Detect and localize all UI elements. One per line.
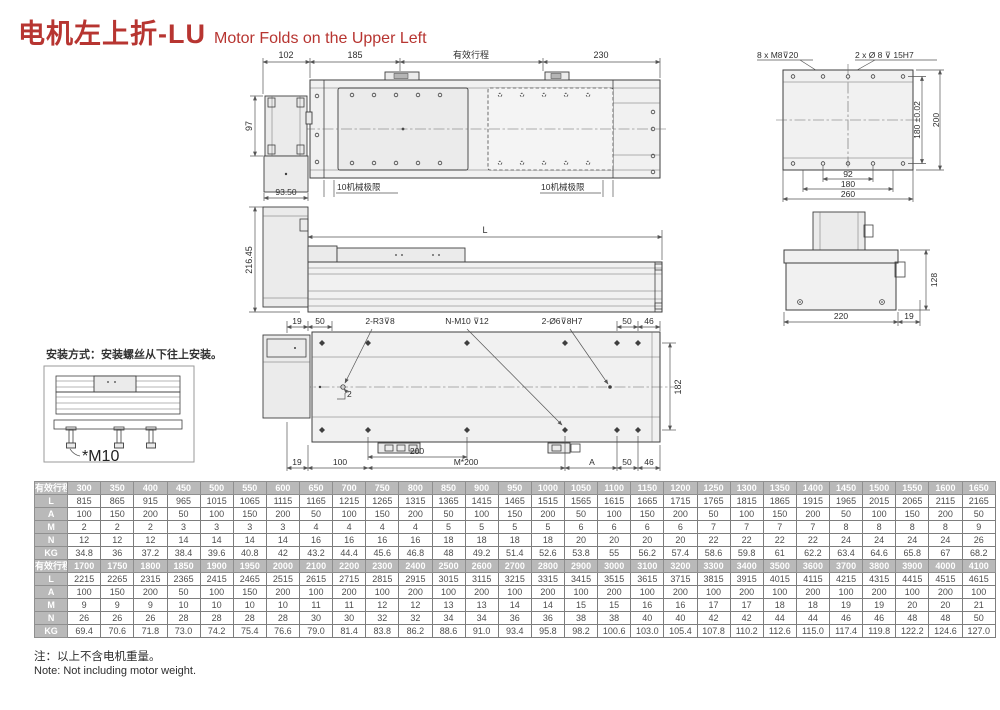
value-cell: 127.0 bbox=[962, 625, 996, 638]
value-cell: 26 bbox=[101, 612, 134, 625]
value-cell: 2 bbox=[68, 521, 101, 534]
value-cell: 1050 bbox=[565, 482, 598, 495]
value-cell: 200 bbox=[863, 586, 896, 599]
value-cell: 14 bbox=[200, 534, 233, 547]
value-cell: 50 bbox=[300, 508, 333, 521]
plan-view: 19 50 2-R3⊽8 N-M10 ⊽12 2-Ø6⊽8H7 50 46 2 … bbox=[263, 316, 683, 471]
value-cell: 2200 bbox=[333, 560, 366, 573]
value-cell: 1000 bbox=[531, 482, 564, 495]
value-cell: 18 bbox=[796, 599, 829, 612]
value-cell: 100 bbox=[631, 586, 664, 599]
value-cell: 83.8 bbox=[366, 625, 399, 638]
value-cell: 350 bbox=[101, 482, 134, 495]
value-cell: 1665 bbox=[631, 495, 664, 508]
value-cell: 3015 bbox=[432, 573, 465, 586]
technical-drawing: 102 185 有效行程 230 97 93.50 bbox=[0, 0, 1000, 480]
value-cell: 1165 bbox=[300, 495, 333, 508]
value-cell: 17 bbox=[730, 599, 763, 612]
motor-end-view bbox=[813, 212, 873, 250]
value-cell: 200 bbox=[333, 586, 366, 599]
value-cell: 63.4 bbox=[830, 547, 863, 560]
value-cell: 1015 bbox=[200, 495, 233, 508]
value-cell: 2400 bbox=[399, 560, 432, 573]
value-cell: 21 bbox=[962, 599, 996, 612]
top-view: 102 185 有效行程 230 97 93.50 bbox=[244, 49, 666, 201]
dim-label: 180 ±0.02 bbox=[912, 101, 922, 139]
mech-limit-label: 10机械极限 bbox=[541, 182, 585, 192]
value-cell: 44.4 bbox=[333, 547, 366, 560]
value-cell: 45.6 bbox=[366, 547, 399, 560]
value-cell: 1800 bbox=[134, 560, 167, 573]
dim-label: 216.45 bbox=[244, 246, 254, 274]
value-cell: 6 bbox=[631, 521, 664, 534]
dim-label: 180 bbox=[841, 179, 855, 189]
value-cell: 3500 bbox=[763, 560, 796, 573]
value-cell: 100 bbox=[763, 586, 796, 599]
motor-side-view bbox=[263, 207, 308, 307]
dim-label: 200 bbox=[410, 446, 424, 456]
value-cell: 2515 bbox=[266, 573, 299, 586]
table-row: A100150200501001502005010015020050100150… bbox=[35, 508, 996, 521]
value-cell: 3 bbox=[200, 521, 233, 534]
dim-label: 230 bbox=[593, 50, 608, 60]
value-cell: 107.8 bbox=[697, 625, 730, 638]
value-cell: 115.0 bbox=[796, 625, 829, 638]
value-cell: 24 bbox=[863, 534, 896, 547]
value-cell: 1350 bbox=[763, 482, 796, 495]
value-cell: 100 bbox=[565, 586, 598, 599]
dim-label: 2 bbox=[347, 389, 352, 399]
value-cell: 2700 bbox=[498, 560, 531, 573]
pin-callout: 2 x Ø 8 ⊽ 15H7 bbox=[855, 50, 914, 60]
value-cell: 65.8 bbox=[896, 547, 929, 560]
spec-table-body: 有效行程300350400450500550600650700750800850… bbox=[35, 482, 996, 638]
value-cell: 2715 bbox=[333, 573, 366, 586]
table-row: 有效行程170017501800185019001950200021002200… bbox=[35, 560, 996, 573]
value-cell: 1515 bbox=[531, 495, 564, 508]
value-cell: 200 bbox=[531, 508, 564, 521]
hole-callout: 2-Ø6⊽8H7 bbox=[542, 316, 583, 326]
value-cell: 13 bbox=[432, 599, 465, 612]
value-cell: 40 bbox=[631, 612, 664, 625]
value-cell: 20 bbox=[631, 534, 664, 547]
value-cell: 150 bbox=[896, 508, 929, 521]
row-header-cell: L bbox=[35, 495, 68, 508]
value-cell: 100 bbox=[896, 586, 929, 599]
value-cell: 18 bbox=[531, 534, 564, 547]
value-cell: 50 bbox=[962, 612, 996, 625]
value-cell: 4 bbox=[399, 521, 432, 534]
value-cell: 2915 bbox=[399, 573, 432, 586]
value-cell: 100 bbox=[863, 508, 896, 521]
value-cell: 2 bbox=[134, 521, 167, 534]
row-header-cell: KG bbox=[35, 547, 68, 560]
row-header-cell: A bbox=[35, 508, 68, 521]
value-cell: 8 bbox=[863, 521, 896, 534]
value-cell: 62.2 bbox=[796, 547, 829, 560]
value-cell: 1715 bbox=[664, 495, 697, 508]
value-cell: 2365 bbox=[167, 573, 200, 586]
hole-callout: N-M10 ⊽12 bbox=[445, 316, 489, 326]
value-cell: 200 bbox=[598, 586, 631, 599]
value-cell: 110.2 bbox=[730, 625, 763, 638]
value-cell: 48 bbox=[432, 547, 465, 560]
value-cell: 4415 bbox=[896, 573, 929, 586]
value-cell: 1215 bbox=[333, 495, 366, 508]
value-cell: 3415 bbox=[565, 573, 598, 586]
value-cell: 69.4 bbox=[68, 625, 101, 638]
value-cell: 34.8 bbox=[68, 547, 101, 560]
value-cell: 24 bbox=[830, 534, 863, 547]
value-cell: 150 bbox=[763, 508, 796, 521]
value-cell: 1450 bbox=[830, 482, 863, 495]
row-header-cell: L bbox=[35, 573, 68, 586]
value-cell: 1765 bbox=[697, 495, 730, 508]
value-cell: 52.6 bbox=[531, 547, 564, 560]
value-cell: 38 bbox=[565, 612, 598, 625]
value-cell: 650 bbox=[300, 482, 333, 495]
value-cell: 28 bbox=[266, 612, 299, 625]
value-cell: 20 bbox=[664, 534, 697, 547]
value-cell: 22 bbox=[697, 534, 730, 547]
dim-label: 50 bbox=[622, 316, 632, 326]
value-cell: 1615 bbox=[598, 495, 631, 508]
value-cell: 73.0 bbox=[167, 625, 200, 638]
dim-label: 19 bbox=[292, 316, 302, 326]
value-cell: 200 bbox=[465, 586, 498, 599]
value-cell: 3915 bbox=[730, 573, 763, 586]
value-cell: 34 bbox=[432, 612, 465, 625]
value-cell: 1115 bbox=[266, 495, 299, 508]
rail-body bbox=[308, 262, 662, 312]
value-cell: 2600 bbox=[465, 560, 498, 573]
dim-label: 19 bbox=[292, 457, 302, 467]
value-cell: 13 bbox=[465, 599, 498, 612]
value-cell: 18 bbox=[465, 534, 498, 547]
value-cell: 42 bbox=[697, 612, 730, 625]
value-cell: 965 bbox=[167, 495, 200, 508]
end-view-top: 8 x M8⊽20 2 x Ø 8 ⊽ 15H7 bbox=[757, 50, 944, 202]
value-cell: 12 bbox=[366, 599, 399, 612]
value-cell: 2165 bbox=[962, 495, 996, 508]
value-cell: 71.8 bbox=[134, 625, 167, 638]
value-cell: 50 bbox=[830, 508, 863, 521]
value-cell: 122.2 bbox=[896, 625, 929, 638]
value-cell: 3200 bbox=[664, 560, 697, 573]
dim-label: 182 bbox=[673, 379, 683, 394]
value-cell: 3815 bbox=[697, 573, 730, 586]
value-cell: 79.0 bbox=[300, 625, 333, 638]
value-cell: 50 bbox=[167, 508, 200, 521]
spec-table: 有效行程300350400450500550600650700750800850… bbox=[34, 481, 996, 638]
value-cell: 2000 bbox=[266, 560, 299, 573]
value-cell: 100 bbox=[962, 586, 996, 599]
value-cell: 14 bbox=[233, 534, 266, 547]
value-cell: 6 bbox=[565, 521, 598, 534]
value-cell: 67 bbox=[929, 547, 962, 560]
value-cell: 4 bbox=[333, 521, 366, 534]
value-cell: 14 bbox=[498, 599, 531, 612]
table-row: N262626282828283030323234343636383840404… bbox=[35, 612, 996, 625]
value-cell: 95.8 bbox=[531, 625, 564, 638]
value-cell: 28 bbox=[200, 612, 233, 625]
value-cell: 200 bbox=[730, 586, 763, 599]
dim-label: 50 bbox=[622, 457, 632, 467]
value-cell: 150 bbox=[233, 586, 266, 599]
table-row: L221522652315236524152465251526152715281… bbox=[35, 573, 996, 586]
value-cell: 200 bbox=[134, 586, 167, 599]
value-cell: 81.4 bbox=[333, 625, 366, 638]
title-en: Motor Folds on the Upper Left bbox=[214, 30, 427, 47]
value-cell: 38 bbox=[598, 612, 631, 625]
table-row: A100150200501001502001002001002001002001… bbox=[35, 586, 996, 599]
value-cell: 2100 bbox=[300, 560, 333, 573]
value-cell: 50 bbox=[565, 508, 598, 521]
value-cell: 2265 bbox=[101, 573, 134, 586]
mech-limit-label: 10机械极限 bbox=[337, 182, 381, 192]
value-cell: 18 bbox=[763, 599, 796, 612]
dim-label: 100 bbox=[333, 457, 347, 467]
page-title: 电机左上折-LUMotor Folds on the Upper Left bbox=[18, 12, 427, 51]
value-cell: 4 bbox=[366, 521, 399, 534]
value-cell: 150 bbox=[101, 586, 134, 599]
value-cell: 12 bbox=[134, 534, 167, 547]
value-cell: 55 bbox=[598, 547, 631, 560]
value-cell: 88.6 bbox=[432, 625, 465, 638]
value-cell: 124.6 bbox=[929, 625, 962, 638]
dim-label: 260 bbox=[841, 189, 855, 199]
value-cell: 93.4 bbox=[498, 625, 531, 638]
value-cell: 750 bbox=[366, 482, 399, 495]
value-cell: 200 bbox=[664, 508, 697, 521]
value-cell: 48 bbox=[896, 612, 929, 625]
value-cell: 26 bbox=[962, 534, 996, 547]
value-cell: 20 bbox=[929, 599, 962, 612]
value-cell: 200 bbox=[266, 586, 299, 599]
value-cell: 24 bbox=[896, 534, 929, 547]
row-header-cell: N bbox=[35, 612, 68, 625]
value-cell: 1315 bbox=[399, 495, 432, 508]
row-header-cell: A bbox=[35, 586, 68, 599]
table-row: KG34.83637.238.439.640.84243.244.445.646… bbox=[35, 547, 996, 560]
value-cell: 5 bbox=[465, 521, 498, 534]
value-cell: 200 bbox=[266, 508, 299, 521]
value-cell: 300 bbox=[68, 482, 101, 495]
install-caption: 安装方式：安装螺丝从下往上安装。 bbox=[46, 347, 222, 361]
value-cell: 46 bbox=[830, 612, 863, 625]
value-cell: 61 bbox=[763, 547, 796, 560]
value-cell: 100.6 bbox=[598, 625, 631, 638]
value-cell: 5 bbox=[498, 521, 531, 534]
footnotes: 注：以上不含电机重量。 Note: Not including motor we… bbox=[34, 648, 196, 677]
value-cell: 14 bbox=[167, 534, 200, 547]
dim-label: 128 bbox=[929, 273, 939, 287]
dim-label: L bbox=[482, 225, 487, 235]
value-cell: 20 bbox=[896, 599, 929, 612]
value-cell: 16 bbox=[664, 599, 697, 612]
value-cell: 1850 bbox=[167, 560, 200, 573]
value-cell: 40 bbox=[664, 612, 697, 625]
value-cell: 12 bbox=[101, 534, 134, 547]
value-cell: 39.6 bbox=[200, 547, 233, 560]
value-cell: 3615 bbox=[631, 573, 664, 586]
value-cell: 1600 bbox=[929, 482, 962, 495]
value-cell: 57.4 bbox=[664, 547, 697, 560]
value-cell: 2065 bbox=[896, 495, 929, 508]
value-cell: 550 bbox=[233, 482, 266, 495]
value-cell: 10 bbox=[167, 599, 200, 612]
value-cell: 915 bbox=[134, 495, 167, 508]
value-cell: 18 bbox=[432, 534, 465, 547]
value-cell: 119.8 bbox=[863, 625, 896, 638]
value-cell: 1950 bbox=[233, 560, 266, 573]
value-cell: 3000 bbox=[598, 560, 631, 573]
value-cell: 100 bbox=[730, 508, 763, 521]
value-cell: 4115 bbox=[796, 573, 829, 586]
value-cell: 22 bbox=[763, 534, 796, 547]
value-cell: 4215 bbox=[830, 573, 863, 586]
value-cell: 43.2 bbox=[300, 547, 333, 560]
value-cell: 50 bbox=[697, 508, 730, 521]
value-cell: 100 bbox=[432, 586, 465, 599]
table-row: M999101010101111121213131414151516161717… bbox=[35, 599, 996, 612]
value-cell: 19 bbox=[830, 599, 863, 612]
value-cell: 100 bbox=[366, 586, 399, 599]
value-cell: 150 bbox=[233, 508, 266, 521]
value-cell: 16 bbox=[631, 599, 664, 612]
value-cell: 91.0 bbox=[465, 625, 498, 638]
row-header-cell: 有效行程 bbox=[35, 560, 68, 573]
value-cell: 10 bbox=[233, 599, 266, 612]
value-cell: 1565 bbox=[565, 495, 598, 508]
row-header-cell: KG bbox=[35, 625, 68, 638]
value-cell: 200 bbox=[134, 508, 167, 521]
value-cell: 98.2 bbox=[565, 625, 598, 638]
value-cell: 1100 bbox=[598, 482, 631, 495]
value-cell: 1965 bbox=[830, 495, 863, 508]
value-cell: 49.2 bbox=[465, 547, 498, 560]
value-cell: 100 bbox=[697, 586, 730, 599]
value-cell: 1650 bbox=[962, 482, 996, 495]
value-cell: 9 bbox=[962, 521, 996, 534]
value-cell: 3215 bbox=[498, 573, 531, 586]
value-cell: 50 bbox=[167, 586, 200, 599]
side-view: L 216.45 bbox=[244, 207, 662, 312]
value-cell: 2815 bbox=[366, 573, 399, 586]
value-cell: 3900 bbox=[896, 560, 929, 573]
value-cell: 6 bbox=[598, 521, 631, 534]
value-cell: 150 bbox=[631, 508, 664, 521]
value-cell: 700 bbox=[333, 482, 366, 495]
value-cell: 3100 bbox=[631, 560, 664, 573]
value-cell: 2315 bbox=[134, 573, 167, 586]
value-cell: 3115 bbox=[465, 573, 498, 586]
value-cell: 100 bbox=[465, 508, 498, 521]
dim-label-stroke: 有效行程 bbox=[453, 49, 489, 60]
value-cell: 3715 bbox=[664, 573, 697, 586]
value-cell: 4515 bbox=[929, 573, 962, 586]
value-cell: 150 bbox=[498, 508, 531, 521]
value-cell: 4015 bbox=[763, 573, 796, 586]
value-cell: 48 bbox=[929, 612, 962, 625]
value-cell: 1200 bbox=[664, 482, 697, 495]
value-cell: 16 bbox=[399, 534, 432, 547]
value-cell: 103.0 bbox=[631, 625, 664, 638]
value-cell: 46 bbox=[863, 612, 896, 625]
value-cell: 26 bbox=[134, 612, 167, 625]
table-row: KG69.470.671.873.074.275.476.679.081.483… bbox=[35, 625, 996, 638]
value-cell: 7 bbox=[730, 521, 763, 534]
value-cell: 850 bbox=[432, 482, 465, 495]
value-cell: 12 bbox=[68, 534, 101, 547]
value-cell: 1915 bbox=[796, 495, 829, 508]
value-cell: 100 bbox=[68, 586, 101, 599]
value-cell: 16 bbox=[366, 534, 399, 547]
value-cell: 22 bbox=[796, 534, 829, 547]
value-cell: 44 bbox=[796, 612, 829, 625]
table-row: 有效行程300350400450500550600650700750800850… bbox=[35, 482, 996, 495]
value-cell: 150 bbox=[366, 508, 399, 521]
value-cell: 15 bbox=[598, 599, 631, 612]
value-cell: 2465 bbox=[233, 573, 266, 586]
value-cell: 2215 bbox=[68, 573, 101, 586]
value-cell: 200 bbox=[664, 586, 697, 599]
value-cell: 8 bbox=[929, 521, 962, 534]
value-cell: 1250 bbox=[697, 482, 730, 495]
value-cell: 1415 bbox=[465, 495, 498, 508]
value-cell: 1465 bbox=[498, 495, 531, 508]
value-cell: 10 bbox=[266, 599, 299, 612]
value-cell: 11 bbox=[300, 599, 333, 612]
value-cell: 5 bbox=[432, 521, 465, 534]
motor-top-view bbox=[264, 96, 312, 192]
value-cell: 7 bbox=[763, 521, 796, 534]
value-cell: 32 bbox=[399, 612, 432, 625]
value-cell: 800 bbox=[399, 482, 432, 495]
value-cell: 2900 bbox=[565, 560, 598, 573]
screw-size-label: *M10 bbox=[82, 448, 119, 465]
value-cell: 900 bbox=[465, 482, 498, 495]
value-cell: 600 bbox=[266, 482, 299, 495]
thread-callout: 8 x M8⊽20 bbox=[757, 50, 798, 60]
value-cell: 58.6 bbox=[697, 547, 730, 560]
value-cell: 865 bbox=[101, 495, 134, 508]
value-cell: 117.4 bbox=[830, 625, 863, 638]
hole-callout: 2-R3⊽8 bbox=[365, 316, 395, 326]
value-cell: 100 bbox=[498, 586, 531, 599]
value-cell: 59.8 bbox=[730, 547, 763, 560]
value-cell: 38.4 bbox=[167, 547, 200, 560]
value-cell: 1150 bbox=[631, 482, 664, 495]
dim-label: 102 bbox=[278, 50, 293, 60]
value-cell: 26 bbox=[68, 612, 101, 625]
footnote-zh: 注：以上不含电机重量。 bbox=[34, 648, 196, 664]
value-cell: 17 bbox=[697, 599, 730, 612]
value-cell: 9 bbox=[68, 599, 101, 612]
value-cell: 100 bbox=[200, 586, 233, 599]
value-cell: 1865 bbox=[763, 495, 796, 508]
value-cell: 46.8 bbox=[399, 547, 432, 560]
value-cell: 14 bbox=[266, 534, 299, 547]
value-cell: 3800 bbox=[863, 560, 896, 573]
value-cell: 64.6 bbox=[863, 547, 896, 560]
value-cell: 1815 bbox=[730, 495, 763, 508]
value-cell: 3 bbox=[167, 521, 200, 534]
row-header-cell: M bbox=[35, 599, 68, 612]
value-cell: 3700 bbox=[830, 560, 863, 573]
row-header-cell: 有效行程 bbox=[35, 482, 68, 495]
value-cell: 1365 bbox=[432, 495, 465, 508]
